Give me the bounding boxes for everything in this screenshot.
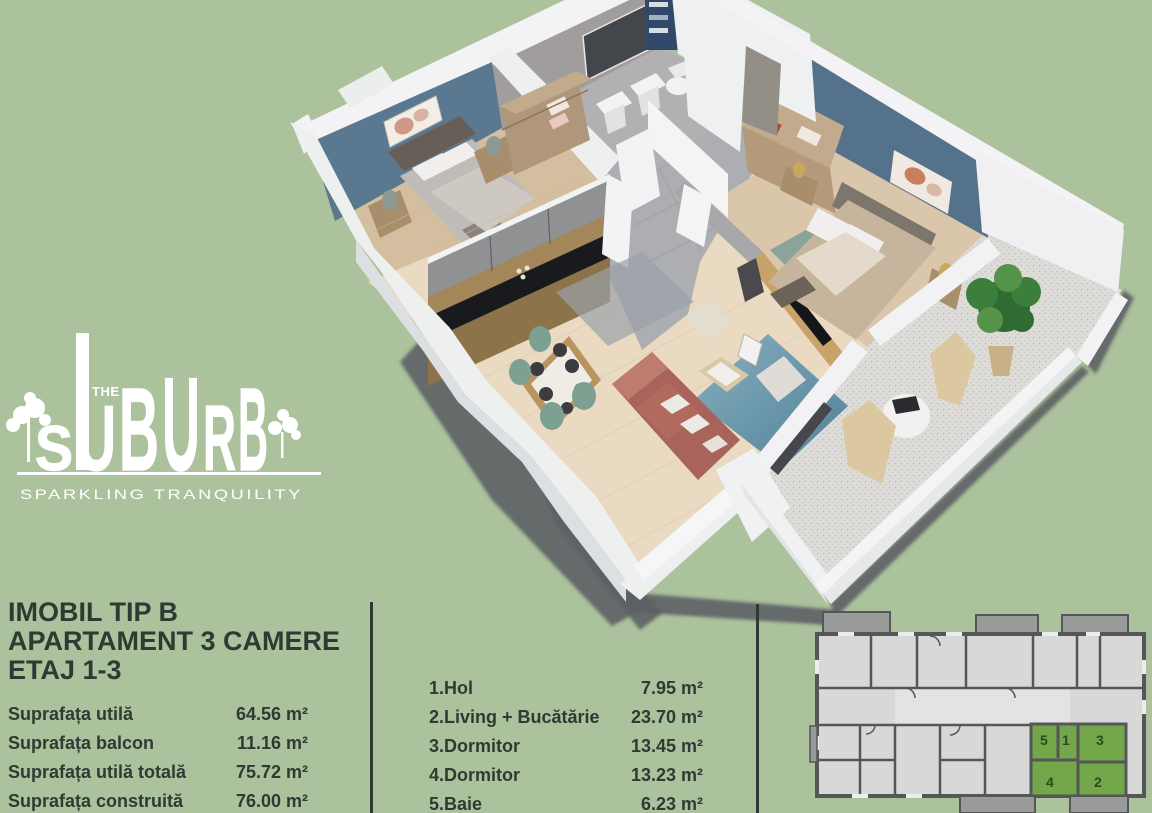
svg-text:U: U — [162, 351, 200, 499]
svg-text:2.Living + Bucătărie: 2.Living + Bucătărie — [429, 707, 600, 727]
svg-text:IMOBIL TIP B: IMOBIL TIP B — [8, 597, 178, 627]
svg-text:13.45 m²: 13.45 m² — [631, 736, 703, 756]
svg-text:ETAJ 1-3: ETAJ 1-3 — [8, 655, 122, 685]
svg-text:Suprafața utilă totală: Suprafața utilă totală — [8, 762, 187, 782]
svg-text:B: B — [119, 364, 159, 496]
svg-text:2: 2 — [1094, 774, 1102, 790]
svg-text:11.16 m²: 11.16 m² — [237, 733, 308, 753]
svg-text:75.72 m²: 75.72 m² — [236, 762, 308, 782]
svg-text:6.23 m²: 6.23 m² — [641, 794, 703, 813]
svg-text:APARTAMENT 3 CAMERE: APARTAMENT 3 CAMERE — [8, 626, 340, 656]
svg-text:3: 3 — [1096, 732, 1104, 748]
svg-text:5.Baie: 5.Baie — [429, 794, 482, 813]
svg-text:7.95 m²: 7.95 m² — [641, 678, 703, 698]
svg-text:23.70 m²: 23.70 m² — [631, 707, 703, 727]
svg-text:4.Dormitor: 4.Dormitor — [429, 765, 520, 785]
svg-text:1.Hol: 1.Hol — [429, 678, 473, 698]
svg-text:13.23 m²: 13.23 m² — [631, 765, 703, 785]
svg-text:Suprafața balcon: Suprafața balcon — [8, 733, 154, 753]
svg-text:4: 4 — [1046, 774, 1054, 790]
svg-text:Suprafața construită: Suprafața construită — [8, 791, 184, 811]
svg-text:B: B — [238, 364, 268, 496]
svg-text:64.56 m²: 64.56 m² — [236, 704, 308, 724]
svg-text:5: 5 — [1040, 732, 1048, 748]
svg-text:SPARKLING TRANQUILITY: SPARKLING TRANQUILITY — [20, 486, 303, 502]
svg-text:1: 1 — [1062, 732, 1070, 748]
svg-text:3.Dormitor: 3.Dormitor — [429, 736, 520, 756]
svg-text:76.00 m²: 76.00 m² — [236, 791, 308, 811]
svg-text:Suprafața utilă: Suprafața utilă — [8, 704, 134, 724]
